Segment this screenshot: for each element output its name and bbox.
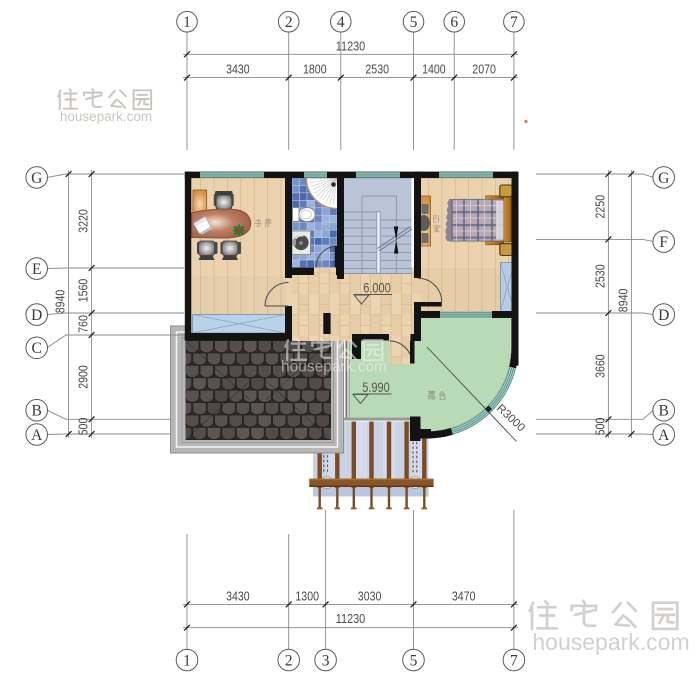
svg-text:3430: 3430 xyxy=(226,588,250,603)
svg-text:11230: 11230 xyxy=(336,39,366,54)
svg-text:D: D xyxy=(31,307,42,324)
svg-text:2: 2 xyxy=(285,652,293,669)
svg-text:2070: 2070 xyxy=(472,62,496,77)
svg-text:500: 500 xyxy=(592,418,607,436)
svg-text:6: 6 xyxy=(450,14,458,31)
svg-text:D: D xyxy=(658,307,669,324)
svg-text:housepark.com: housepark.com xyxy=(60,109,152,124)
svg-text:housepark.com: housepark.com xyxy=(532,629,689,655)
svg-text:3660: 3660 xyxy=(592,354,607,378)
svg-text:7: 7 xyxy=(510,652,518,669)
svg-text:4: 4 xyxy=(337,14,345,31)
svg-text:G: G xyxy=(31,170,42,187)
svg-text:housepark.com: housepark.com xyxy=(281,359,387,376)
svg-text:1: 1 xyxy=(183,14,191,31)
svg-text:1560: 1560 xyxy=(76,279,91,303)
svg-text:2: 2 xyxy=(285,14,293,31)
svg-text:760: 760 xyxy=(76,315,91,333)
svg-text:1: 1 xyxy=(183,652,191,669)
svg-text:3220: 3220 xyxy=(76,209,91,233)
svg-text:5: 5 xyxy=(410,652,418,669)
svg-text:8940: 8940 xyxy=(53,290,68,314)
svg-text:3030: 3030 xyxy=(358,588,382,603)
svg-text:2250: 2250 xyxy=(592,195,607,219)
svg-text:7: 7 xyxy=(510,14,518,31)
svg-text:F: F xyxy=(659,234,668,251)
svg-text:G: G xyxy=(658,170,669,187)
svg-text:B: B xyxy=(32,403,42,420)
svg-text:B: B xyxy=(659,403,669,420)
svg-text:1300: 1300 xyxy=(295,588,319,603)
svg-text:2530: 2530 xyxy=(592,264,607,288)
svg-text:11230: 11230 xyxy=(336,611,366,626)
svg-text:3470: 3470 xyxy=(452,588,476,603)
svg-text:8940: 8940 xyxy=(616,289,631,313)
svg-text:2900: 2900 xyxy=(76,365,91,389)
svg-text:3430: 3430 xyxy=(226,62,250,77)
svg-text:C: C xyxy=(32,340,42,357)
svg-text:E: E xyxy=(32,261,41,278)
svg-text:5.990: 5.990 xyxy=(362,380,390,395)
svg-text:6.000: 6.000 xyxy=(363,281,391,296)
svg-text:500: 500 xyxy=(76,418,91,436)
svg-text:A: A xyxy=(658,427,670,444)
svg-text:1400: 1400 xyxy=(422,62,446,77)
svg-text:3: 3 xyxy=(322,652,330,669)
svg-text:2530: 2530 xyxy=(365,62,389,77)
svg-text:A: A xyxy=(31,427,43,444)
svg-text:5: 5 xyxy=(410,14,418,31)
svg-text:1800: 1800 xyxy=(303,62,327,77)
